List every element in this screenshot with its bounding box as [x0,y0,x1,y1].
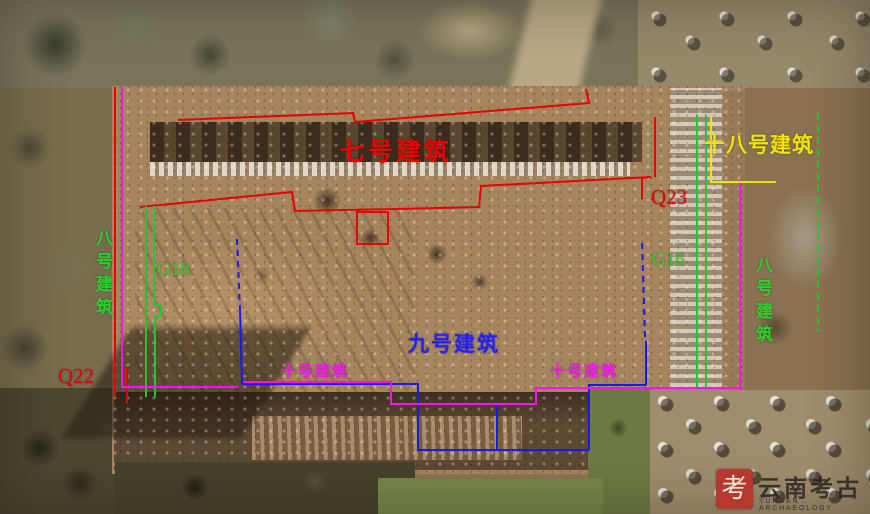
label-building-10-right: 十号建筑 [550,360,618,381]
label-wall-q22: Q22 [58,364,94,389]
label-building-8-left: 八号建筑 [90,229,115,321]
annotation-lines-overlay [0,0,870,514]
building-9-west [240,309,242,384]
seal-glyph: 考 [716,469,753,509]
watermark: 考 云南考古 YUNNAN ARCHAEOLOGY [712,467,867,511]
label-building-18: 十八号建筑 [704,129,814,159]
watermark-english: YUNNAN ARCHAEOLOGY [759,498,867,512]
label-ditch-g16: G16 [652,249,685,271]
label-building-9: 九号建筑 [408,328,500,358]
label-building-7: 七号建筑 [340,132,452,168]
building-9-east-dashed [642,240,645,337]
building-10-outline [243,382,740,404]
seal-logo-icon: 考 [716,469,753,509]
building-8-west-line [122,87,238,387]
label-building-10-left: 十号建筑 [281,360,349,381]
label-ditch-g18: G18 [157,259,190,281]
building-7-south-wall [140,177,651,211]
label-building-8-right: 八号建筑 [750,256,775,348]
building-7-north-wall [178,89,589,122]
ditch-g18-east [154,206,161,397]
aerial-photo: 七号建筑 十八号建筑 九号建筑 十号建筑 十号建筑 八号建筑 八号建筑 G18 … [0,0,870,514]
building-9-west-dashed [237,239,240,309]
label-wall-q23: Q23 [651,185,687,210]
building-7-pit-outline [357,212,388,244]
